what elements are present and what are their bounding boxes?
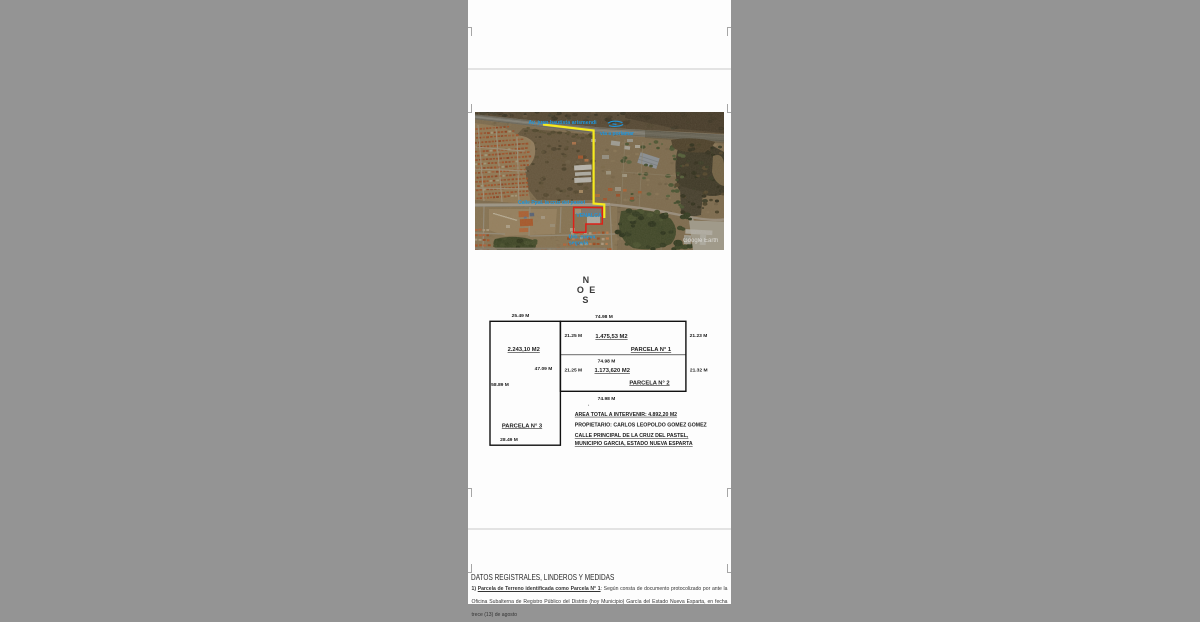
svg-text:25.49 M: 25.49 M	[512, 313, 530, 319]
svg-text:1.173,620 M2: 1.173,620 M2	[594, 368, 629, 374]
svg-text:2.243,10 M2: 2.243,10 M2	[508, 347, 540, 353]
svg-text:.: .	[588, 403, 590, 408]
svg-text:1.475,53 M2: 1.475,53 M2	[595, 334, 627, 340]
svg-text:58.89 M: 58.89 M	[491, 382, 509, 388]
svg-text:Google Earth: Google Earth	[683, 238, 718, 244]
svg-text:segovia: segovia	[569, 241, 588, 247]
svg-text:PROPIETARIO: CARLOS LEOPOLDO G: PROPIETARIO: CARLOS LEOPOLDO GOMEZ GOMEZ	[575, 422, 708, 428]
svg-text:PARCELA N° 1: PARCELA N° 1	[631, 347, 672, 353]
svg-text:74.98 M: 74.98 M	[595, 314, 613, 320]
svg-text:74.98 M: 74.98 M	[598, 358, 616, 364]
svg-text:CALLE PRINCIPAL DE LA CRUZ DEL: CALLE PRINCIPAL DE LA CRUZ DEL PASTEL,	[575, 433, 689, 439]
svg-text:21.32 M: 21.32 M	[690, 367, 708, 373]
svg-text:PARCELA N° 3: PARCELA N° 3	[502, 423, 543, 429]
svg-text:21.23 M: 21.23 M	[690, 333, 708, 339]
svg-text:AREA TOTAL A INTERVENIR: 4.892: AREA TOTAL A INTERVENIR: 4.892,20 M2	[575, 412, 677, 418]
svg-text:Av. juan bautista arismendi: Av. juan bautista arismendi	[528, 120, 597, 126]
svg-text:28.49 M: 28.49 M	[500, 437, 518, 443]
svg-text:74.98 M: 74.98 M	[598, 396, 616, 402]
svg-text:MUNICIPIO GARCIA, ESTADO NUEVA: MUNICIPIO GARCIA, ESTADO NUEVA ESPARTA	[575, 441, 693, 447]
svg-text:Calle Ppal. la cruz del pastel: Calle Ppal. la cruz del pastel	[518, 200, 586, 206]
svg-text:47.09 M: 47.09 M	[535, 366, 553, 372]
svg-text:via a porlamar: via a porlamar	[600, 131, 634, 137]
svg-text:21.25 M: 21.25 M	[564, 333, 582, 339]
svg-text:VENALCA: VENALCA	[576, 213, 602, 219]
svg-text:Urb. nueva: Urb. nueva	[569, 234, 596, 240]
svg-text:PARCELA N° 2: PARCELA N° 2	[629, 380, 669, 386]
svg-text:21.25 M: 21.25 M	[564, 367, 582, 373]
